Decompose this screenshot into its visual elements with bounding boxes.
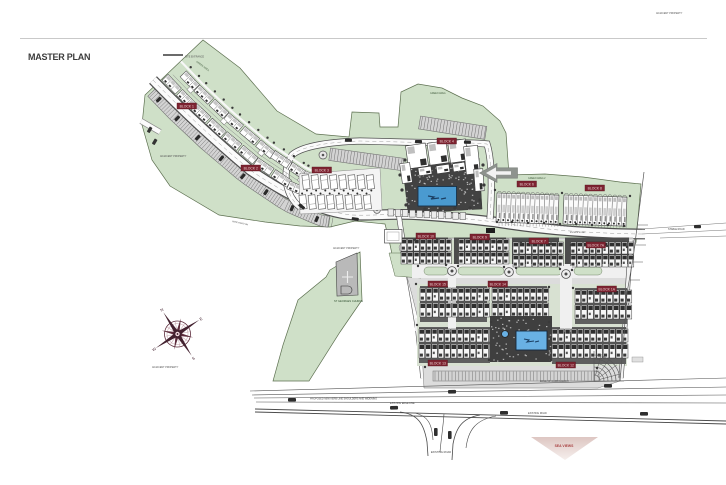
- svg-text:ADJACENT PROPERTY: ADJACENT PROPERTY: [656, 12, 683, 15]
- svg-text:MASTER PLAN: MASTER PLAN: [28, 52, 90, 62]
- svg-text:BLOCK 10: BLOCK 10: [418, 234, 434, 238]
- svg-text:EXISTING ROAD: EXISTING ROAD: [431, 450, 451, 454]
- svg-text:BLOCK 6: BLOCK 6: [520, 182, 534, 186]
- svg-text:ADJACENT PROPERTY: ADJACENT PROPERTY: [152, 366, 179, 369]
- svg-text:BLOCK 15: BLOCK 15: [430, 282, 446, 286]
- svg-text:PROPOSED NEW KERB LINE SHOULDE: PROPOSED NEW KERB LINE SHOULDERS AND WID…: [310, 398, 377, 401]
- svg-text:ADJACENT PROPERTY: ADJACENT PROPERTY: [333, 247, 360, 250]
- svg-text:BLOCK 13: BLOCK 13: [430, 361, 446, 365]
- svg-text:BLOCK 2: BLOCK 2: [244, 166, 258, 170]
- svg-text:BLOCK 4: BLOCK 4: [440, 139, 454, 143]
- svg-text:GREEN AREA 2: GREEN AREA 2: [528, 177, 546, 180]
- svg-text:BLOCK 1A: BLOCK 1A: [598, 287, 615, 291]
- svg-text:BLOCK 14: BLOCK 14: [490, 282, 506, 286]
- svg-text:EXISTING EDGE LINE: EXISTING EDGE LINE: [390, 402, 415, 405]
- svg-text:BLOCK 9: BLOCK 9: [473, 235, 487, 239]
- svg-text:BLOCK 12: BLOCK 12: [558, 363, 574, 367]
- svg-text:BLOCK 7: BLOCK 7: [532, 239, 546, 243]
- svg-text:BLOCK 8: BLOCK 8: [588, 186, 602, 190]
- svg-text:SITE ENTRANCE: SITE ENTRANCE: [185, 56, 205, 59]
- svg-text:SEA VIEWS: SEA VIEWS: [555, 444, 574, 448]
- svg-text:BLOCK 7A: BLOCK 7A: [587, 243, 604, 247]
- svg-text:BLOCK 3: BLOCK 3: [315, 168, 329, 172]
- svg-text:EDGE OF CARRIAGEWAY: EDGE OF CARRIAGEWAY: [540, 380, 569, 383]
- svg-text:ADJACENT PROPERTY: ADJACENT PROPERTY: [160, 155, 187, 158]
- svg-text:GREEN AREA: GREEN AREA: [430, 92, 446, 95]
- svg-text:ST GEORGES CHURCH: ST GEORGES CHURCH: [334, 299, 363, 303]
- svg-text:BLOCK 1: BLOCK 1: [180, 104, 194, 108]
- svg-text:STABLE ROAD: STABLE ROAD: [668, 228, 685, 231]
- svg-text:EXISTING ROAD: EXISTING ROAD: [528, 412, 547, 415]
- svg-text:ESTATE ROAD: ESTATE ROAD: [570, 231, 586, 234]
